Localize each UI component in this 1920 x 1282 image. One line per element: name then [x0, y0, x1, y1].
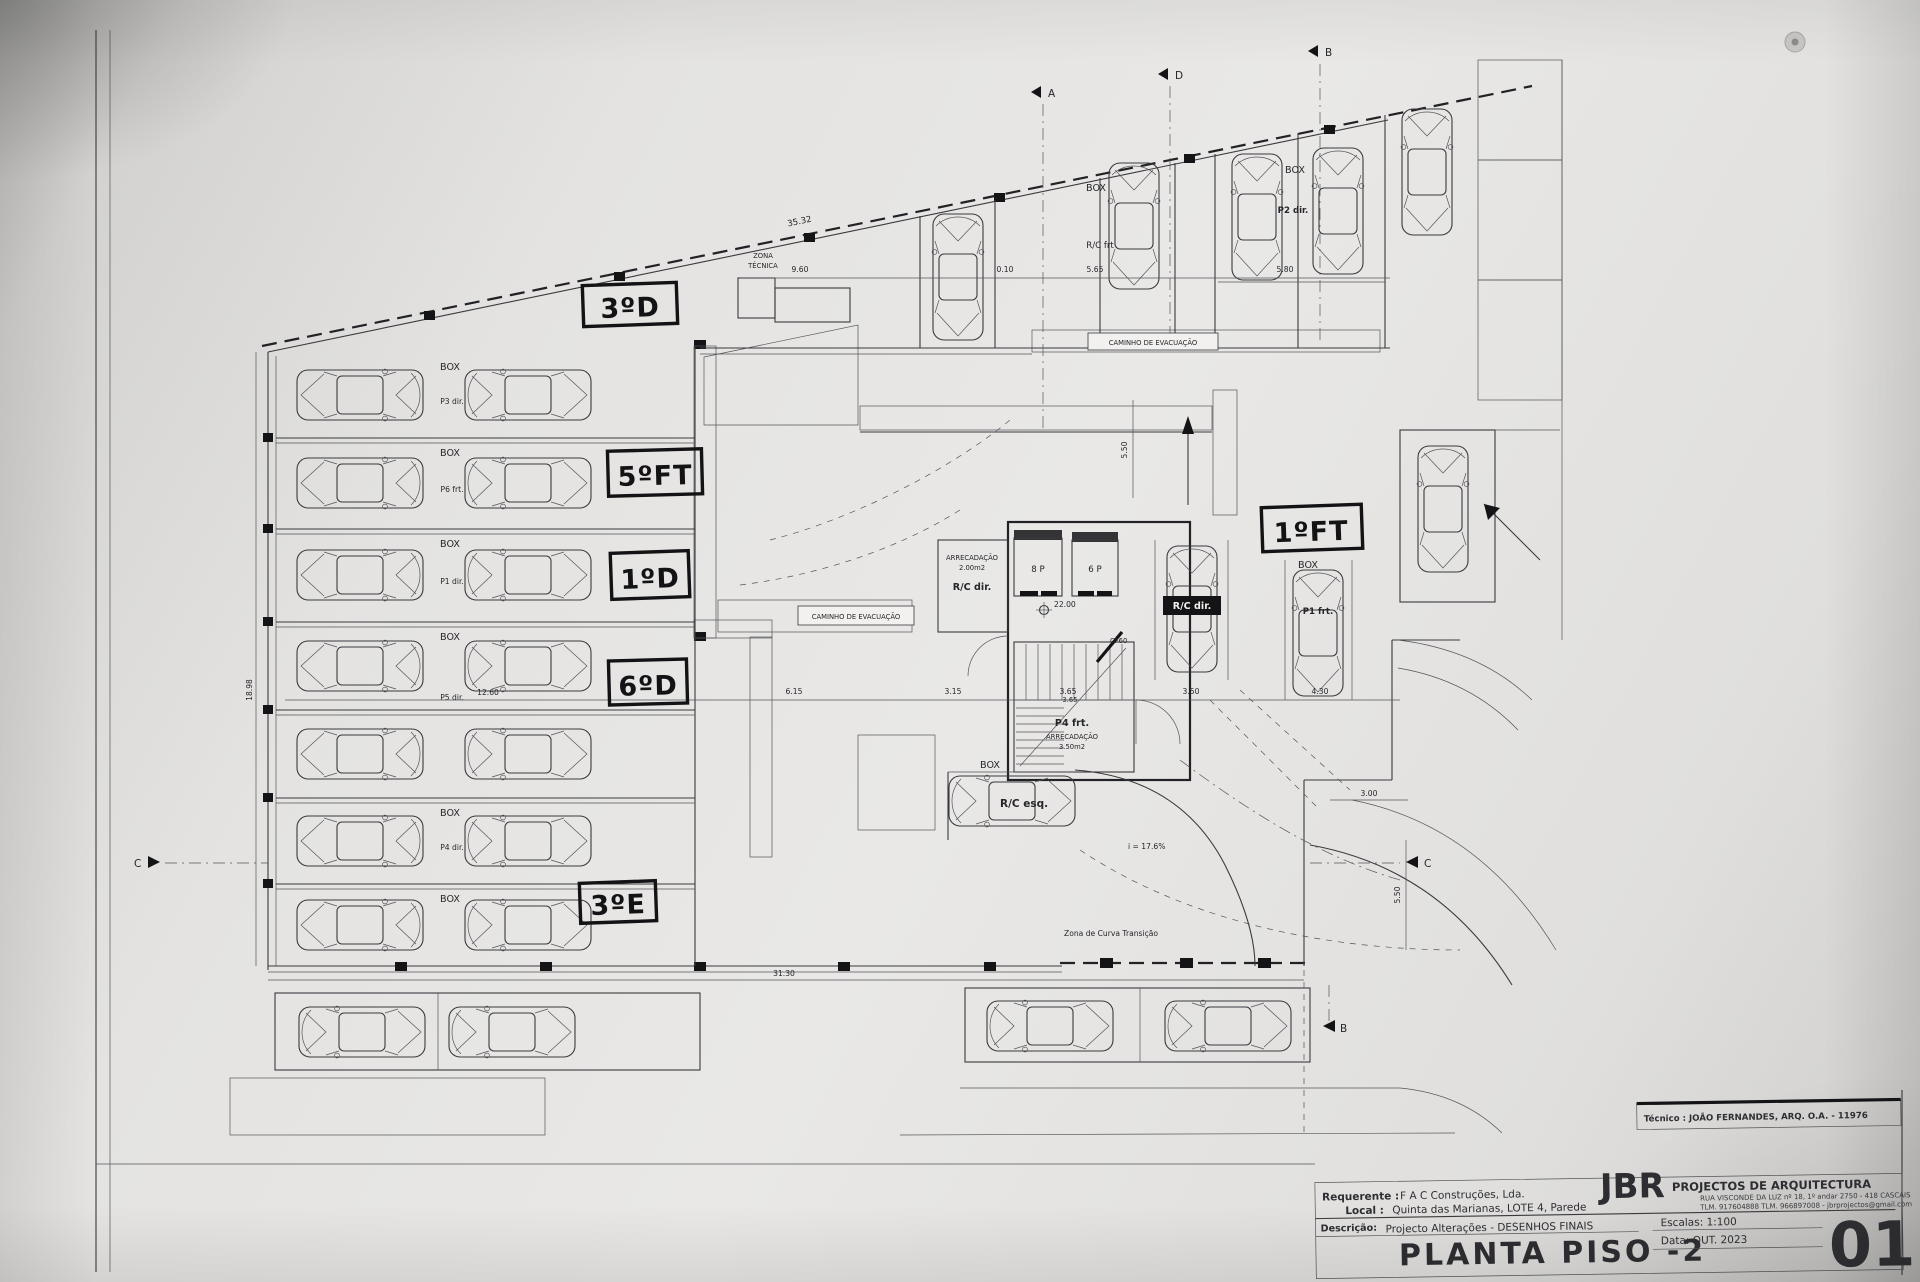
dim-mid-3: 3.65 — [1060, 687, 1077, 696]
stall-row-label: P1 dir. — [440, 577, 464, 586]
ramp-arrow — [1182, 416, 1194, 505]
stall-row-box: BOX — [440, 632, 460, 643]
dim-mid-2: 3.15 — [945, 687, 962, 696]
car-icon — [297, 899, 423, 951]
stall-row-label: P5 dir. — [440, 693, 464, 702]
data-line: Data: OUT. 2023 — [1661, 1234, 1748, 1247]
requerente-label: Requerente : — [1322, 1190, 1399, 1203]
store1-name: ARRECADAÇÃO — [946, 553, 998, 562]
svg-text:5ºFT: 5ºFT — [617, 460, 693, 493]
car-icon — [297, 728, 423, 780]
car-icon — [299, 1006, 425, 1058]
dim-mid-4: 3.50 — [1183, 687, 1200, 696]
boundary-ticks — [263, 125, 1335, 971]
car-icon — [297, 549, 423, 601]
zona-tecnica-label: ZONA — [753, 252, 773, 260]
car-icon — [465, 457, 591, 509]
stall-row-label: P4 dir. — [440, 843, 464, 852]
car-icon — [297, 815, 423, 867]
section-marker-c-left: C — [134, 858, 141, 870]
bottom-exterior-stalls — [230, 970, 1502, 1135]
box-p2-label: BOX — [1285, 165, 1305, 176]
dim-top-4: 5.80 — [1277, 265, 1294, 274]
section-marker-a: A — [1048, 88, 1056, 100]
car-icon — [932, 214, 984, 340]
stall-row-box: BOX — [440, 362, 460, 373]
handwritten-3e: 3ºE — [579, 881, 656, 924]
box-top-label: BOX — [1086, 183, 1106, 194]
photographed-floor-plan-sheet: ZONA TÉCNICA CAMINHO DE EVACUAÇÃO CAMINH… — [0, 0, 1920, 1282]
escalas-line: Escalas: 1:100 — [1660, 1216, 1736, 1229]
left-parking-block — [276, 346, 695, 966]
car-icon — [1292, 570, 1344, 696]
rc-esq-label: R/C esq. — [1000, 798, 1048, 810]
section-marker-b-top: B — [1325, 47, 1332, 59]
handwritten-1ft: 1ºFT — [1261, 504, 1362, 551]
stall-row-label: P3 dir. — [440, 397, 464, 406]
svg-text:6ºD: 6ºD — [618, 670, 678, 703]
drive-path-guides — [165, 64, 1460, 1022]
car-icon — [449, 1006, 575, 1058]
car-icon — [1401, 109, 1453, 235]
tecnico-line: Técnico : JOÃO FERNANDES, ARQ. O.A. - 11… — [1644, 1110, 1868, 1125]
handwritten-5ft: 5ºFT — [607, 449, 702, 496]
requerente-value: F A C Construções, Lda. — [1400, 1188, 1525, 1202]
car-icon — [465, 899, 591, 951]
store1-unit: R/C dir. — [953, 582, 991, 593]
car-icon — [465, 369, 591, 421]
store1-area: 2.00m2 — [959, 564, 985, 572]
svg-text:3ºE: 3ºE — [590, 889, 647, 922]
level-value: 22.00 — [1054, 600, 1076, 609]
car-icon — [465, 640, 591, 692]
stall-row-box: BOX — [440, 539, 460, 550]
dim-block: 12.60 — [477, 688, 499, 697]
firm-initials: JBR — [1598, 1166, 1665, 1207]
stall-row-label: P6 frt. — [440, 485, 463, 494]
box-rc-esq-label: BOX — [980, 760, 1000, 771]
dim-mid-5: 4.30 — [1312, 687, 1329, 696]
section-marker-c-right: C — [1424, 858, 1431, 870]
lift2-label: 6 P — [1088, 565, 1101, 575]
car-icon — [987, 1000, 1113, 1052]
lift1-label: 8 P — [1031, 565, 1044, 575]
dim-top-2: 0.10 — [997, 265, 1014, 274]
dim-core-height: 5.50 — [1120, 441, 1129, 458]
store2-area: 3.50m2 — [1059, 743, 1085, 751]
local-value: Quinta das Marianas, LOTE 4, Parede — [1392, 1201, 1586, 1216]
dim-top-3: 5.65 — [1087, 265, 1104, 274]
car-icon — [1165, 1000, 1291, 1052]
dim-bottom: 31.30 — [773, 969, 795, 978]
dim-top-1: 9.60 — [792, 265, 809, 274]
dim-right-width: 3.00 — [1361, 789, 1378, 798]
descricao-label: Descrição: — [1320, 1223, 1377, 1235]
car-icon — [465, 815, 591, 867]
section-marker-b-bottom: B — [1340, 1023, 1347, 1035]
car-icon — [297, 457, 423, 509]
car-icon — [297, 640, 423, 692]
handwritten-labels: 3ºD 5ºFT 1ºD 6ºD 3ºE 1ºFT — [579, 282, 1362, 923]
stall-row-box: BOX — [440, 894, 460, 905]
elevator-2 — [1072, 532, 1118, 596]
caminho-evacuacao-mid: CAMINHO DE EVACUAÇÃO — [812, 612, 901, 621]
car-icon — [465, 549, 591, 601]
car-icon — [297, 369, 423, 421]
svg-text:1ºFT: 1ºFT — [1273, 516, 1349, 550]
stall-row-box: BOX — [440, 808, 460, 819]
dim-top-slant: 35.32 — [787, 215, 813, 230]
car-icon — [465, 728, 591, 780]
rc-dir-stall-label: R/C dir. — [1173, 601, 1211, 612]
handwritten-1d: 1ºD — [610, 551, 690, 600]
rc-frt-label: R/C frt — [1086, 241, 1114, 251]
box-p1-label: BOX — [1298, 560, 1318, 571]
section-marker-d: D — [1175, 70, 1183, 82]
section-markers: A D B C C B — [134, 45, 1431, 1035]
elevator-1 — [1014, 530, 1062, 596]
cf60-label: CF60 — [1110, 637, 1127, 645]
car-icon — [1417, 446, 1469, 572]
svg-text:3ºD: 3ºD — [600, 292, 660, 325]
svg-text:1ºD: 1ºD — [620, 563, 680, 596]
dim-mid-1: 6.15 — [786, 687, 803, 696]
car-icon — [1108, 163, 1160, 289]
stall-row-box: BOX — [440, 448, 460, 459]
dim-left-vertical: 18.98 — [245, 679, 254, 701]
central-core — [860, 416, 1352, 966]
sheet-number: 01 — [1828, 1207, 1915, 1281]
parked-cars — [297, 109, 1469, 1058]
staircase — [1014, 642, 1134, 772]
floor-plan-drawing: ZONA TÉCNICA CAMINHO DE EVACUAÇÃO CAMINH… — [0, 0, 1920, 1282]
p2-dir-label: P2 dir. — [1278, 206, 1309, 216]
dim-right-height: 5.50 — [1393, 886, 1402, 903]
p1-frt-label: P1 frt. — [1303, 607, 1334, 617]
handwritten-6d: 6ºD — [608, 659, 687, 705]
level-marker-icon — [1036, 602, 1052, 618]
car-icon — [1231, 154, 1283, 280]
stair-unit-label: P4 frt. — [1055, 718, 1089, 729]
store2-name: ARRECADAÇÃO — [1046, 732, 1098, 741]
descricao-value: Projecto Alterações - DESENHOS FINAIS — [1385, 1220, 1593, 1235]
zona-curva-label: Zona de Curva Transição — [1064, 929, 1158, 938]
zona-tecnica-label-2: TÉCNICA — [747, 261, 778, 270]
plan-labels: ZONA TÉCNICA CAMINHO DE EVACUAÇÃO CAMINH… — [440, 165, 1333, 938]
title-block: Técnico : JOÃO FERNANDES, ARQ. O.A. - 11… — [1314, 1099, 1916, 1282]
local-label: Local : — [1345, 1205, 1384, 1218]
ramp-slope-label: i = 17.6% — [1128, 842, 1165, 851]
handwritten-3d: 3ºD — [582, 282, 677, 326]
caminho-evacuacao-top: CAMINHO DE EVACUAÇÃO — [1109, 338, 1198, 347]
